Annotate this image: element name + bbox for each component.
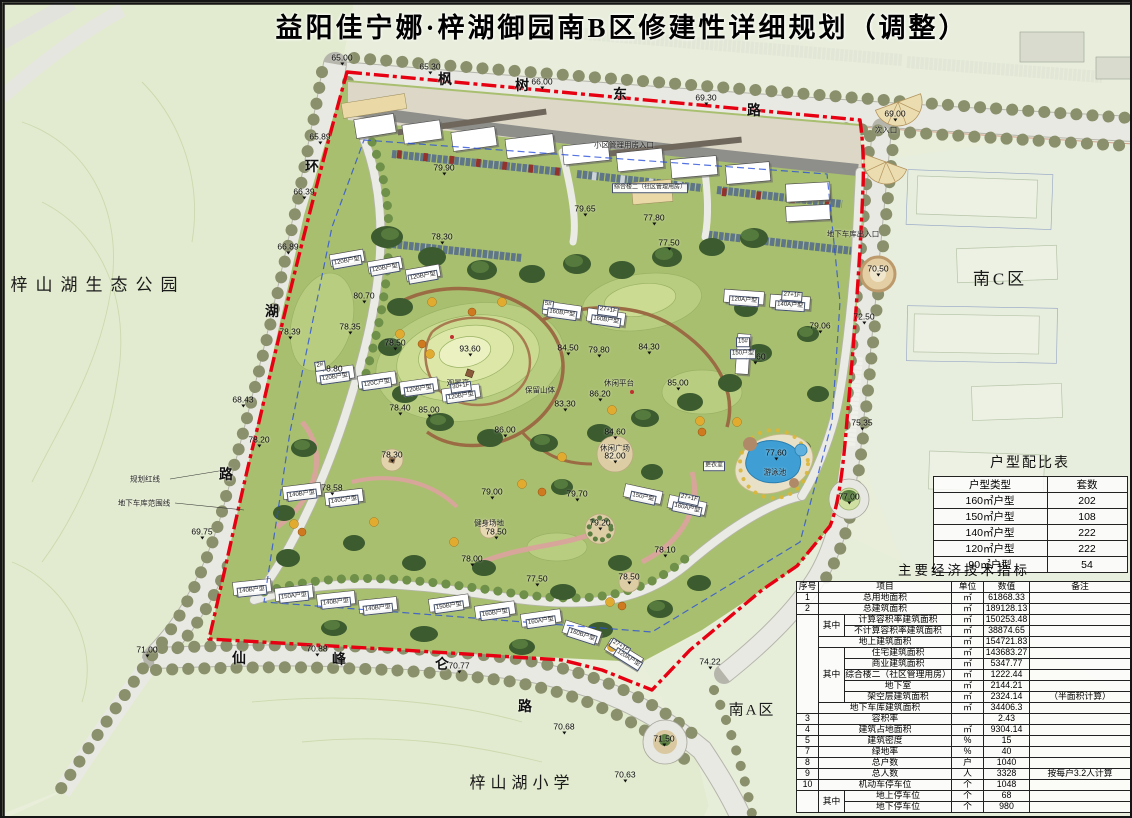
table-cell — [1030, 791, 1131, 802]
table-cell: 地下停车位 — [845, 802, 952, 813]
table-cell: ㎡ — [952, 593, 984, 604]
table-cell: 68 — [984, 791, 1030, 802]
table-cell — [797, 791, 819, 813]
table-header-cell: 单位 — [952, 582, 984, 593]
table-cell — [1030, 615, 1131, 626]
table-cell: 980 — [984, 802, 1030, 813]
table-cell: 计算容积率建筑面积 — [845, 615, 952, 626]
table-cell: ㎡ — [952, 615, 984, 626]
unit-mix-table-title: 户型配比表 — [930, 452, 1130, 472]
table-cell: 3328 — [984, 769, 1030, 780]
table-cell: 38874.65 — [984, 626, 1030, 637]
table-cell: 40 — [984, 747, 1030, 758]
table-cell: 150253.48 — [984, 615, 1030, 626]
table-cell — [1030, 725, 1131, 736]
table-cell: ㎡ — [952, 648, 984, 659]
table-cell — [1030, 758, 1131, 769]
table-cell: 按每户3.2人计算 — [1030, 769, 1131, 780]
table-cell: 140㎡户型 — [933, 525, 1047, 541]
table-cell — [1030, 604, 1131, 615]
table-cell — [1030, 714, 1131, 725]
indicators-table: 主要经济技术指标 序号项目单位数值备注1总用地面积㎡61868.332总建筑面积… — [796, 559, 1132, 813]
table-header-cell: 项目 — [819, 582, 952, 593]
table-cell: 9304.14 — [984, 725, 1030, 736]
table-cell — [1030, 637, 1131, 648]
table-cell: 108 — [1047, 509, 1127, 525]
table-cell: 2324.14 — [984, 692, 1030, 703]
table-header-cell: 备注 — [1030, 582, 1131, 593]
table-cell: 1 — [797, 593, 819, 604]
table-cell: 189128.13 — [984, 604, 1030, 615]
table-cell — [952, 714, 984, 725]
table-cell: 户 — [952, 758, 984, 769]
table-cell — [1030, 648, 1131, 659]
table-cell — [1030, 593, 1131, 604]
table-cell — [1030, 626, 1131, 637]
table-cell: 人 — [952, 769, 984, 780]
table-cell: 其中 — [819, 615, 845, 637]
table-cell: ㎡ — [952, 637, 984, 648]
table-cell: 地上建筑面积 — [819, 637, 952, 648]
table-cell: 202 — [1047, 493, 1127, 509]
table-cell: ㎡ — [952, 703, 984, 714]
table-cell — [1030, 736, 1131, 747]
table-cell — [1030, 681, 1131, 692]
table-cell: 8 — [797, 758, 819, 769]
table-cell — [1030, 780, 1131, 791]
table-cell: 120㎡户型 — [933, 541, 1047, 557]
table-cell: 160㎡户型 — [933, 493, 1047, 509]
table-cell: ㎡ — [952, 692, 984, 703]
table-cell: 住宅建筑面积 — [845, 648, 952, 659]
table-cell: % — [952, 747, 984, 758]
table-cell: 7 — [797, 747, 819, 758]
table-cell: 2144.21 — [984, 681, 1030, 692]
table-cell: 建筑密度 — [819, 736, 952, 747]
indicators-table-grid: 序号项目单位数值备注1总用地面积㎡61868.332总建筑面积㎡189128.1… — [796, 581, 1131, 813]
table-cell: 总用地面积 — [819, 593, 952, 604]
table-cell: 34406.3 — [984, 703, 1030, 714]
table-cell: 总户数 — [819, 758, 952, 769]
table-cell — [797, 615, 819, 714]
table-cell: 个 — [952, 791, 984, 802]
table-cell: 绿地率 — [819, 747, 952, 758]
table-cell: ㎡ — [952, 681, 984, 692]
table-header-cell: 数值 — [984, 582, 1030, 593]
table-header-cell: 户型类型 — [933, 477, 1047, 493]
table-cell: ㎡ — [952, 659, 984, 670]
table-cell: ㎡ — [952, 725, 984, 736]
table-cell: 个 — [952, 780, 984, 791]
table-cell: 15 — [984, 736, 1030, 747]
table-cell: 2 — [797, 604, 819, 615]
table-cell: 1040 — [984, 758, 1030, 769]
table-cell: 1048 — [984, 780, 1030, 791]
table-cell: 建筑占地面积 — [819, 725, 952, 736]
table-cell: 其中 — [819, 791, 845, 813]
table-cell — [1030, 659, 1131, 670]
table-cell: 商业建筑面积 — [845, 659, 952, 670]
table-cell: 不计算容积率建筑面积 — [845, 626, 952, 637]
table-cell: ㎡ — [952, 626, 984, 637]
table-cell: 222 — [1047, 525, 1127, 541]
table-cell: 总人数 — [819, 769, 952, 780]
table-cell: 总建筑面积 — [819, 604, 952, 615]
table-cell: 9 — [797, 769, 819, 780]
table-cell: 个 — [952, 802, 984, 813]
fitness-area — [480, 520, 498, 538]
table-cell: 其中 — [819, 648, 845, 703]
table-header-cell: 序号 — [797, 582, 819, 593]
table-cell: 154721.83 — [984, 637, 1030, 648]
table-cell: 地下室 — [845, 681, 952, 692]
table-cell — [1030, 670, 1131, 681]
table-cell: 1222.44 — [984, 670, 1030, 681]
indicators-table-title: 主要经济技术指标 — [796, 559, 1132, 579]
table-cell: 地下车库建筑面积 — [819, 703, 952, 714]
table-cell: 综合楼二（社区管理用房） — [845, 670, 952, 681]
table-cell: 容积率 — [819, 714, 952, 725]
table-cell: 4 — [797, 725, 819, 736]
table-cell: （半面积计算） — [1030, 692, 1131, 703]
table-cell: 机动车停车位 — [819, 780, 952, 791]
table-cell: 150㎡户型 — [933, 509, 1047, 525]
table-cell: 2.43 — [984, 714, 1030, 725]
table-cell — [1030, 703, 1131, 714]
table-header-cell: 套数 — [1047, 477, 1127, 493]
table-cell: 地上停车位 — [845, 791, 952, 802]
table-cell — [1030, 802, 1131, 813]
table-cell: ㎡ — [952, 670, 984, 681]
table-cell: 61868.33 — [984, 593, 1030, 604]
table-cell: 222 — [1047, 541, 1127, 557]
table-cell: 3 — [797, 714, 819, 725]
table-cell: 10 — [797, 780, 819, 791]
unit-mix-table: 户型配比表 户型类型套数160㎡户型202150㎡户型108140㎡户型2221… — [930, 452, 1130, 573]
table-cell: ㎡ — [952, 604, 984, 615]
table-cell: 5 — [797, 736, 819, 747]
table-cell: 5347.77 — [984, 659, 1030, 670]
table-cell: % — [952, 736, 984, 747]
table-cell — [1030, 747, 1131, 758]
table-cell: 143683.27 — [984, 648, 1030, 659]
plan-sheet: 益阳佳宁娜·梓湖御园南B区修建性详细规划（调整） 65.0065.3066.00… — [0, 0, 1132, 818]
table-cell: 架空层建筑面积 — [845, 692, 952, 703]
